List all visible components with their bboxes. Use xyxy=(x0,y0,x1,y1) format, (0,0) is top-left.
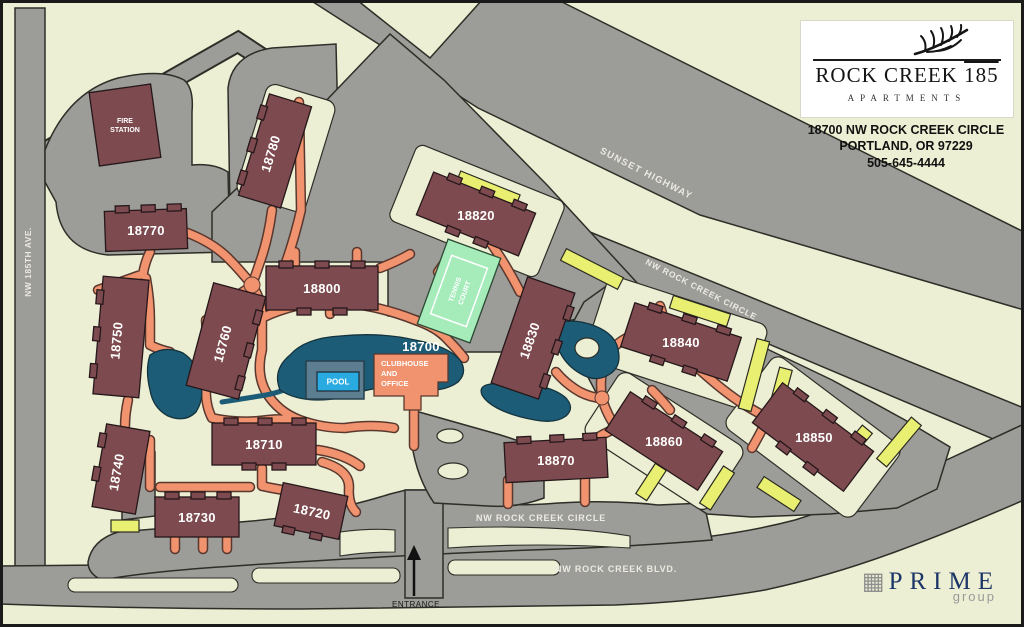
svg-text:STATION: STATION xyxy=(110,127,140,134)
building-label: 18840 xyxy=(662,335,700,350)
svg-text:AND: AND xyxy=(381,369,398,378)
address-line: 18700 NW ROCK CREEK CIRCLE xyxy=(796,122,1016,138)
entrance-label: ENTRANCE xyxy=(392,600,440,609)
building-label: 18770 xyxy=(127,223,165,238)
building-label: 18820 xyxy=(457,208,495,223)
prime-group-logo: ▦ PRIME group xyxy=(862,568,1000,604)
building-label: 18870 xyxy=(537,453,575,468)
svg-text:OFFICE: OFFICE xyxy=(381,379,409,388)
building-label: 18860 xyxy=(645,434,683,449)
road-label-blvd: NW ROCK CREEK BLVD. xyxy=(555,564,677,574)
building-label: 18710 xyxy=(245,437,283,452)
property-address: 18700 NW ROCK CREEK CIRCLE PORTLAND, OR … xyxy=(796,122,1016,171)
address-line: PORTLAND, OR 97229 xyxy=(796,138,1016,154)
brand-number: 185 xyxy=(964,63,999,87)
building-label: 18730 xyxy=(178,510,216,525)
road-label-185th-ave: NW 185TH AVE. xyxy=(23,227,33,297)
road-185th-ave xyxy=(15,8,45,604)
building-fire-station xyxy=(89,84,161,166)
building-label: 18850 xyxy=(795,430,833,445)
road-label-circle-lower: NW ROCK CREEK CIRCLE xyxy=(476,513,606,523)
logo-rule-line xyxy=(813,59,1001,61)
address-line: 505-645-4444 xyxy=(796,155,1016,171)
site-map: 18780 18770 18750 18740 18760 18800 1882… xyxy=(0,0,1024,627)
clubhouse-number: 18700 xyxy=(402,339,440,354)
clubhouse-name: CLUBHOUSE xyxy=(381,359,429,368)
road-entrance-drive xyxy=(405,490,443,598)
pool-label: POOL xyxy=(327,378,350,387)
fire-station-label: FIRE xyxy=(117,118,133,125)
brand-logo-card: ROCK CREEK 185 APARTMENTS xyxy=(800,20,1014,118)
building-label: 18800 xyxy=(303,281,341,296)
brand-name: ROCK CREEK 185 xyxy=(801,63,1013,88)
building-grid-icon: ▦ xyxy=(862,570,885,594)
brand-subtitle: APARTMENTS xyxy=(801,93,1013,103)
